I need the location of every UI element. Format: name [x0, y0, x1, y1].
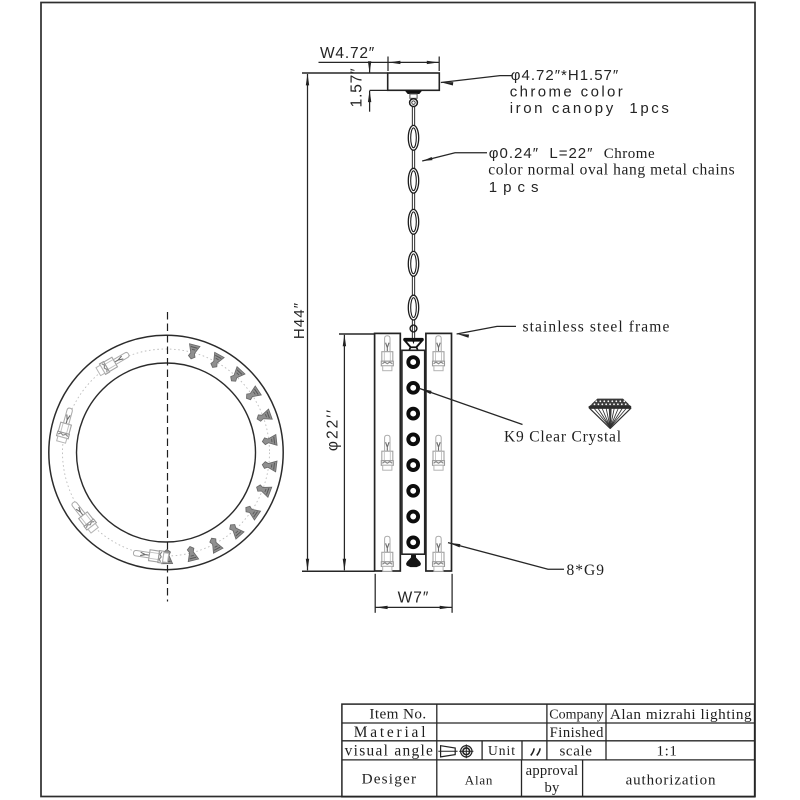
- svg-text:Unit: Unit: [488, 743, 516, 758]
- svg-text:W7″: W7″: [398, 590, 430, 607]
- svg-text:1pcs: 1pcs: [489, 179, 545, 196]
- svg-text:approval: approval: [526, 763, 579, 779]
- svg-text:φ0.24″ L=22″ Chrome: φ0.24″ L=22″ Chrome: [489, 145, 655, 162]
- svg-text:chrome color: chrome color: [510, 83, 626, 100]
- svg-text:color normal oval hang metal c: color normal oval hang metal chains: [488, 162, 735, 179]
- svg-text:K9 Clear Crystal: K9 Clear Crystal: [504, 429, 622, 446]
- svg-text:Finished: Finished: [550, 725, 604, 741]
- svg-text:iron canopy 1pcs: iron canopy 1pcs: [510, 100, 672, 117]
- svg-text:W4.72″: W4.72″: [320, 45, 375, 62]
- svg-text:authorization: authorization: [626, 772, 717, 788]
- svg-text:H44″: H44″: [291, 302, 308, 339]
- svg-text:8*G9: 8*G9: [567, 562, 605, 579]
- svg-text:φ22′′: φ22′′: [324, 408, 341, 451]
- svg-text:visual angle: visual angle: [345, 743, 435, 760]
- svg-text:φ4.72″*H1.57″: φ4.72″*H1.57″: [511, 67, 619, 84]
- svg-text:Material: Material: [354, 724, 429, 741]
- svg-text:by: by: [545, 780, 560, 796]
- svg-text:Alan mizrahi lighting: Alan mizrahi lighting: [610, 706, 752, 723]
- svg-text:Item No.: Item No.: [369, 706, 426, 723]
- svg-text:Alan: Alan: [465, 773, 493, 788]
- svg-text:1:1: 1:1: [657, 744, 678, 760]
- svg-text:stainless steel frame: stainless steel frame: [523, 319, 671, 336]
- svg-text:Company: Company: [549, 708, 603, 723]
- svg-text:Desiger: Desiger: [362, 771, 418, 788]
- svg-text:scale: scale: [560, 744, 593, 760]
